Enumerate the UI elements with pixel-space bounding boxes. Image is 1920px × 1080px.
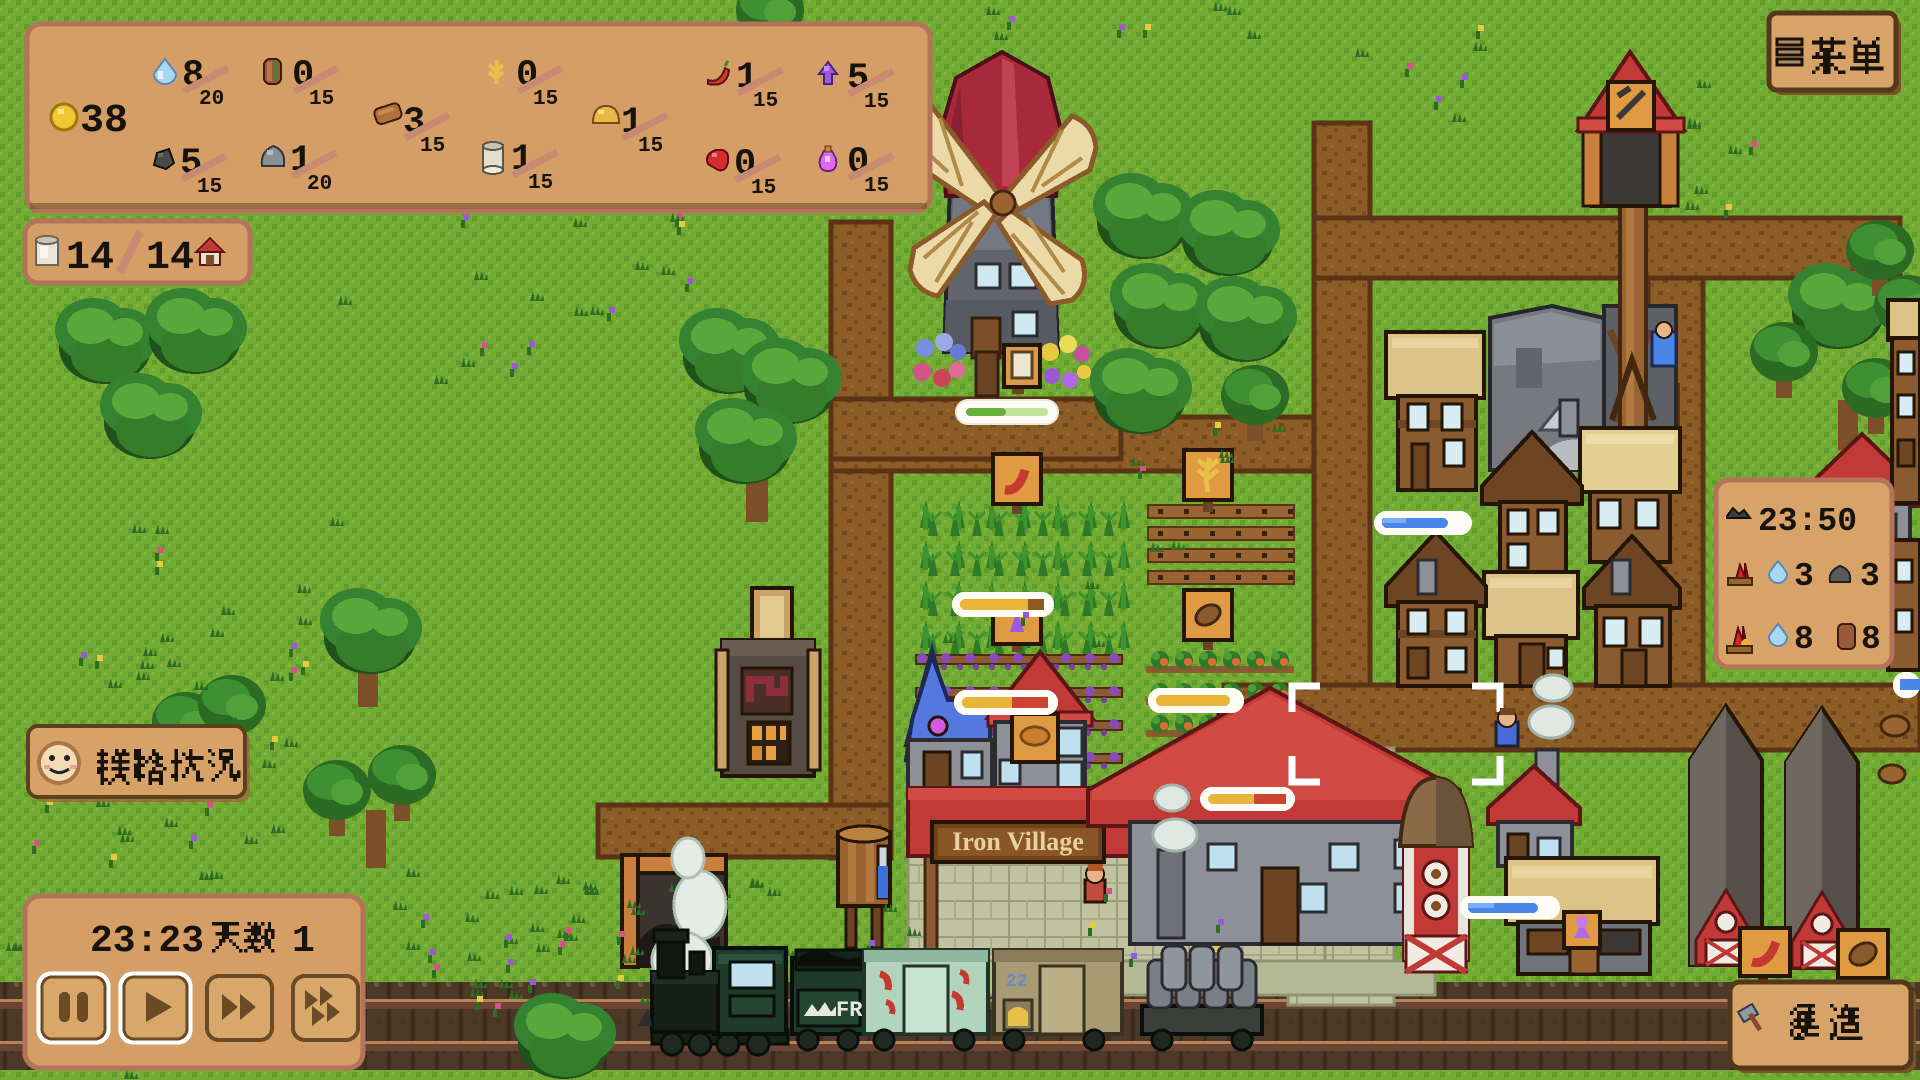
svg-text:FR: FR xyxy=(836,998,863,1023)
svg-text:3: 3 xyxy=(1794,558,1814,595)
svg-text:15: 15 xyxy=(864,91,889,114)
svg-text:14: 14 xyxy=(146,236,194,281)
svg-text:15: 15 xyxy=(197,176,222,199)
svg-text:15: 15 xyxy=(533,88,558,111)
svg-text:15: 15 xyxy=(864,175,889,198)
svg-text:20: 20 xyxy=(199,88,224,111)
svg-text:1: 1 xyxy=(292,920,315,963)
svg-text:15: 15 xyxy=(638,135,663,158)
svg-text:14: 14 xyxy=(66,236,114,281)
svg-text:20: 20 xyxy=(307,173,332,196)
svg-text:15: 15 xyxy=(753,90,778,113)
svg-text:23:50: 23:50 xyxy=(1758,503,1857,540)
svg-text:15: 15 xyxy=(751,177,776,200)
svg-text:8: 8 xyxy=(1794,621,1814,658)
svg-text:8: 8 xyxy=(1861,621,1881,658)
svg-text:15: 15 xyxy=(309,88,334,111)
svg-text:15: 15 xyxy=(528,172,553,195)
svg-text:23:23: 23:23 xyxy=(90,920,204,963)
svg-text:15: 15 xyxy=(420,135,445,158)
svg-text:22: 22 xyxy=(1006,972,1028,992)
svg-text:38: 38 xyxy=(80,99,128,144)
svg-text:3: 3 xyxy=(1860,558,1880,595)
svg-text:Iron Village: Iron Village xyxy=(952,827,1084,856)
